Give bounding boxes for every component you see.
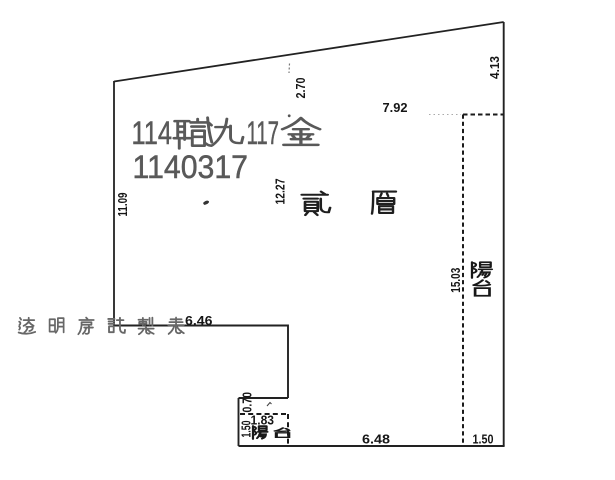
svg-text:1.50: 1.50 xyxy=(239,421,254,438)
svg-text:6.48: 6.48 xyxy=(362,432,390,447)
svg-text:4.13: 4.13 xyxy=(487,56,502,79)
svg-text:15.03: 15.03 xyxy=(448,268,463,293)
svg-text:7.92: 7.92 xyxy=(383,100,408,115)
svg-text:12.27: 12.27 xyxy=(273,179,288,205)
svg-text:117: 117 xyxy=(247,115,280,151)
svg-text:6.46: 6.46 xyxy=(185,313,213,328)
svg-text:1.83: 1.83 xyxy=(251,413,275,428)
svg-text:0.70: 0.70 xyxy=(240,392,255,413)
svg-text:11.09: 11.09 xyxy=(115,193,130,217)
svg-text:114: 114 xyxy=(132,115,173,151)
svg-text:1.50: 1.50 xyxy=(473,432,494,447)
svg-text:1140317: 1140317 xyxy=(133,149,249,185)
svg-text:2.70: 2.70 xyxy=(293,78,308,99)
